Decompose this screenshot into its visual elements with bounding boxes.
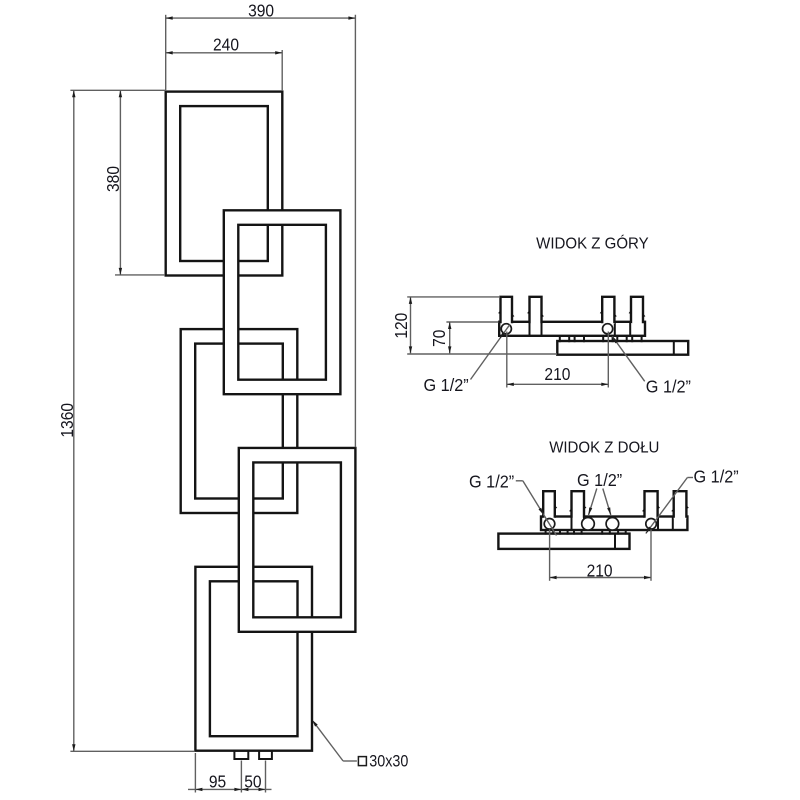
svg-text:390: 390 [248,0,274,20]
svg-text:240: 240 [213,34,239,54]
svg-text:95: 95 [209,772,226,792]
svg-text:210: 210 [587,560,613,580]
svg-text:30x30: 30x30 [369,753,408,771]
svg-text:G 1/2”: G 1/2” [577,470,622,490]
svg-text:G 1/2”: G 1/2” [424,376,469,396]
svg-text:70: 70 [429,330,449,347]
svg-text:WIDOK Z GÓRY: WIDOK Z GÓRY [536,235,649,253]
svg-text:G 1/2”: G 1/2” [646,377,691,397]
svg-text:G 1/2”: G 1/2” [694,467,739,487]
svg-text:120: 120 [391,313,411,339]
svg-text:WIDOK Z DOŁU: WIDOK Z DOŁU [549,439,659,457]
svg-text:G 1/2”: G 1/2” [469,472,514,492]
svg-text:1360: 1360 [57,403,77,438]
svg-text:50: 50 [244,772,261,792]
svg-text:380: 380 [103,166,123,192]
svg-text:210: 210 [544,364,570,384]
